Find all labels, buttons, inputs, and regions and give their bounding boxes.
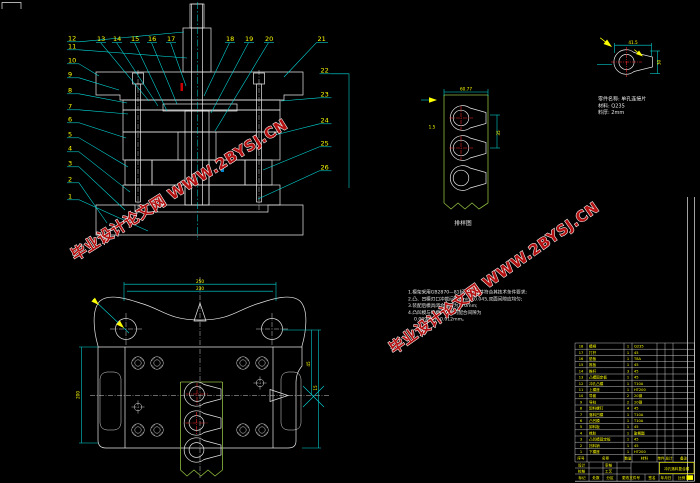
balloon-22: 22 (321, 66, 329, 74)
bom-header: 总计 (665, 456, 673, 461)
balloon-17: 17 (167, 35, 175, 43)
cell-docno: 更改文件号 (622, 475, 640, 480)
rubber-block-right (245, 160, 272, 185)
bom-cell: 1 (627, 357, 629, 361)
cell-process: 工艺 (605, 469, 613, 474)
strip-dim-top: 60.77 (460, 87, 472, 92)
bom-cell: 15 (579, 363, 584, 367)
cell-sign: 签名 (648, 475, 656, 480)
bom-cell: 6 (580, 419, 583, 423)
bom-cell: 45 (634, 425, 639, 429)
part-info-line-1: 零件名称: 单孔连接片 (598, 96, 646, 103)
balloon-25: 25 (321, 140, 329, 148)
scale-label: 比例 (678, 475, 686, 480)
plan-dim-right-a: 45 (306, 361, 311, 367)
bom-cell: 16 (579, 357, 584, 361)
strip-layout-label: 排样图 (454, 219, 472, 227)
rubber-block-left (125, 160, 152, 185)
bom-cell: HT200 (634, 450, 646, 454)
balloon-23: 23 (321, 91, 329, 99)
bom-cell: 45 (634, 407, 639, 411)
bom-cell: 13 (579, 376, 584, 380)
strip-layout: 60.77 1.5 35 排样图 (421, 87, 501, 228)
balloon-5: 5 (68, 131, 72, 139)
bom-cell: 2 (580, 444, 582, 448)
balloon-7: 7 (68, 103, 72, 111)
part-info-line-3: 料厚: 2mm (598, 109, 624, 116)
bom-cell: 1 (627, 419, 629, 423)
bom-cell: 1 (627, 444, 629, 448)
bom-cell: 挡料销 (589, 443, 600, 448)
bom-cell: 3 (580, 438, 582, 442)
balloon-callouts: 1211109876543211314151617181920232425262… (67, 32, 349, 231)
bom-cell: 导柱 (589, 399, 597, 404)
part-detail: 41.5 30 零件名称: 单孔连接片材料: Q235料厚: 2mm (597, 36, 662, 117)
cell-audit: 审核 (605, 463, 613, 468)
balloon-3: 3 (68, 160, 72, 168)
bom-cell: 推板 (589, 362, 597, 367)
plan-dim-top-outer: 250 (196, 279, 204, 284)
bom-cell: 导套 (589, 393, 597, 398)
bom-cell: 凸模固定板 (589, 375, 607, 380)
plan-dimensions: 250 230 200 45 15 (76, 279, 322, 448)
balloon-11: 11 (68, 43, 76, 51)
bom-cell: 2 (627, 400, 629, 404)
bom-cell: Q235 (634, 345, 644, 349)
bom-cell: 2 (627, 394, 629, 398)
bom-cell: 17 (579, 351, 584, 355)
balloon-12: 12 (68, 35, 76, 43)
balloon-4: 4 (68, 145, 72, 153)
part-dim-height: 30 (657, 60, 662, 66)
strip-dim-side: 35 (496, 130, 501, 136)
plan-dim-top-inner: 230 (196, 286, 204, 291)
balloon-2: 2 (68, 176, 72, 184)
cell-date: 年月日 (661, 475, 672, 480)
bom-cell: 落料凹模 (589, 412, 604, 417)
balloon-13: 13 (97, 35, 105, 43)
bom-cell: 橡胶 (589, 430, 597, 435)
bom-cell: 凸凹模 (589, 418, 600, 423)
cell-check: 校核 (578, 469, 586, 474)
stamp-box (687, 475, 694, 480)
bom-cell: 垫板 (589, 356, 597, 361)
bom-cell: 1 (627, 351, 629, 355)
bom-cell: 1 (627, 450, 629, 454)
balloon-24: 24 (321, 117, 329, 125)
bom-cell: 5 (580, 425, 582, 429)
cad-drawing: 1211109876543211314151617181920232425262… (0, 0, 700, 483)
bom-cell: 1 (627, 345, 629, 349)
balloon-8: 8 (68, 87, 72, 95)
balloon-6: 6 (68, 116, 72, 124)
balloon-21: 21 (318, 35, 326, 43)
bom-cell: 45 (634, 351, 639, 355)
bom-cell: 45 (634, 444, 639, 448)
bom-cell: HT200 (634, 388, 646, 392)
bom-cell: 4 (627, 407, 630, 411)
bom-header: 数量 (624, 456, 632, 461)
bom-cell: 模柄 (589, 344, 597, 349)
bom-cell: 20钢 (634, 399, 643, 404)
plan-dim-right-b: 15 (313, 385, 318, 391)
bom-cell: 推杆 (589, 368, 597, 373)
bom-cell: 20钢 (634, 393, 643, 398)
bom-cell: 45 (634, 369, 639, 373)
bom-cell: 3 (627, 369, 629, 373)
bom-cell: 冲孔凸模 (589, 381, 604, 386)
bom-cell: T8A (633, 357, 641, 361)
balloon-14: 14 (113, 35, 121, 43)
bom-cell: 打杆 (589, 350, 597, 355)
bom-cell: 1 (627, 382, 629, 386)
bom-cell: 1 (627, 425, 629, 429)
screw-left (133, 70, 144, 212)
datum-arrow (598, 36, 613, 50)
plan-view: 250 230 200 45 15 (76, 277, 331, 478)
balloon-10: 10 (68, 57, 76, 65)
bom-cell: 12 (579, 382, 584, 386)
watermark-left: 毕业设计论文网 WWW.2BYSJ.CN (68, 115, 291, 264)
bom-cell: 1 (627, 376, 629, 380)
frame-corner-mark (2, 3, 21, 10)
watermark-right: 毕业设计论文网 WWW.2BYSJ.CN (386, 198, 603, 357)
strip-dim-pitch: 1.5 (429, 125, 436, 130)
balloon-20: 20 (265, 35, 273, 43)
drawing-title: 冲孔落料复合模 (664, 466, 690, 471)
bom-cell: 18 (579, 345, 584, 349)
cell-zone: 分区 (606, 475, 614, 480)
bom-cell: 45 (634, 363, 639, 367)
red-accent (181, 83, 184, 91)
balloon-16: 16 (148, 35, 156, 43)
part-dim-width: 41.5 (628, 40, 638, 45)
balloon-1: 1 (68, 193, 72, 201)
cad-canvas: 1211109876543211314151617181920232425262… (0, 0, 700, 483)
bom-cell: 1 (627, 388, 629, 392)
bom-cell: 14 (579, 369, 584, 373)
bom-header: 序号 (577, 456, 585, 461)
bom-cell: 上模座 (589, 387, 600, 392)
bom-cell: 8 (580, 407, 583, 411)
balloon-9: 9 (68, 71, 72, 79)
bom-cell: 卸料板 (589, 424, 600, 429)
bom-cell: 1 (627, 438, 629, 442)
title-block: 冲孔落料复合模 设计 校核 审核 工艺 标记 处数 分区 更改文件号 签名 年月… (575, 462, 695, 481)
bom-table: 18模柄1Q23517打杆14516垫板1T8A15推板14514推杆34513… (575, 343, 695, 462)
part-info-line-2: 材料: Q235 (598, 102, 625, 109)
bom-cell: 45 (634, 376, 639, 380)
bom-cell: T10A (633, 382, 644, 386)
plan-holes (110, 313, 288, 436)
bom-cell: 10 (579, 394, 584, 398)
bom-cell: 7 (580, 413, 582, 417)
cell-mark: 标记 (578, 475, 586, 480)
bom-cell: T10A (633, 419, 644, 423)
part-info-text: 零件名称: 单孔连接片材料: Q235料厚: 2mm (598, 96, 646, 117)
bom-header: 名称 (602, 456, 610, 461)
balloon-26: 26 (321, 164, 329, 172)
bom-header: 材料 (641, 456, 649, 461)
balloon-19: 19 (245, 35, 253, 43)
bom-cell: 4 (580, 431, 583, 435)
bom-cell: 凸凹模固定板 (589, 437, 611, 442)
bom-cell: 1 (580, 450, 582, 454)
bom-cell: 1 (627, 363, 629, 367)
bom-cell: 45 (634, 438, 639, 442)
balloon-15: 15 (131, 35, 139, 43)
cell-design: 设计 (578, 463, 586, 468)
feed-arrow (429, 97, 437, 103)
plan-strip (181, 382, 223, 476)
bom-cell: 卸料螺钉 (589, 406, 604, 411)
datum-arrow-2 (633, 48, 645, 58)
plan-dim-left: 200 (76, 391, 81, 399)
bom-header: 单件 (657, 456, 665, 461)
bom-cell: 聚氨酯 (634, 430, 645, 435)
bom-cell: T10A (633, 413, 644, 417)
bom-cell: 下模座 (589, 449, 600, 454)
leader-arrow (91, 298, 100, 307)
bom-cell: 11 (579, 388, 584, 392)
bom-cell: 1 (627, 431, 629, 435)
cell-count: 处数 (592, 475, 600, 480)
balloon-18: 18 (226, 35, 234, 43)
bom-cell: 9 (580, 400, 583, 404)
bom-cell: 1 (627, 413, 629, 417)
bom-header: 备注 (680, 456, 688, 461)
